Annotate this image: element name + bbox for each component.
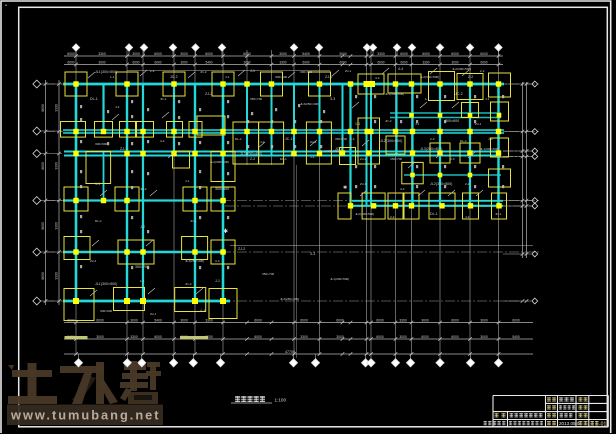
- svg-text:JL3(250×400): JL3(250×400): [240, 152, 262, 156]
- svg-text:6000: 6000: [400, 52, 408, 56]
- svg-text:3000: 3000: [180, 52, 188, 56]
- svg-text:300×600: 300×600: [275, 75, 287, 79]
- svg-text:JL1(300×500): JL1(300×500): [330, 277, 349, 281]
- svg-text:JC-2: JC-2: [170, 75, 178, 79]
- svg-text:ZJ-1: ZJ-1: [475, 122, 481, 126]
- svg-text:300×600: 300×600: [95, 142, 107, 146]
- svg-text:JL3(250×400): JL3(250×400): [300, 102, 319, 106]
- svg-text:6000: 6000: [300, 318, 308, 322]
- svg-text:ZJ-2: ZJ-2: [360, 157, 366, 161]
- svg-text:6000: 6000: [400, 60, 407, 64]
- svg-text:JL2(300×500): JL2(300×500): [380, 139, 402, 143]
- svg-text:47700: 47700: [285, 350, 295, 354]
- svg-text:6000: 6000: [377, 60, 384, 64]
- svg-text:3000: 3000: [130, 318, 138, 322]
- svg-text:3000: 3000: [279, 52, 287, 56]
- svg-text:300×600: 300×600: [100, 309, 112, 313]
- svg-text:6000: 6000: [451, 52, 459, 56]
- svg-text:JC-1: JC-1: [285, 137, 293, 141]
- svg-text:J-1: J-1: [250, 69, 255, 73]
- svg-text:JC-2: JC-2: [185, 282, 192, 286]
- svg-text:6600: 6600: [41, 162, 45, 170]
- svg-text:6000: 6000: [243, 52, 251, 56]
- svg-text:6600: 6600: [41, 222, 45, 230]
- svg-text:350×700: 350×700: [262, 272, 274, 276]
- svg-text:3300: 3300: [55, 162, 59, 170]
- svg-text:350×700: 350×700: [250, 97, 262, 101]
- svg-text:DL-1: DL-1: [90, 97, 98, 101]
- svg-text:JC-1: JC-1: [160, 97, 167, 101]
- svg-text:6000: 6000: [339, 60, 346, 64]
- svg-text:3300: 3300: [98, 52, 106, 56]
- svg-text:2-2: 2-2: [390, 215, 395, 219]
- svg-text:3-3: 3-3: [215, 259, 220, 263]
- svg-text:3000: 3000: [132, 52, 140, 56]
- svg-text:3-3: 3-3: [290, 152, 295, 156]
- svg-text:4-4: 4-4: [160, 139, 165, 143]
- svg-text:2-2: 2-2: [250, 157, 255, 161]
- svg-text:6000: 6000: [67, 52, 75, 56]
- svg-text:3300: 3300: [205, 318, 213, 322]
- svg-text:4-4: 4-4: [200, 309, 205, 313]
- svg-text:5400: 5400: [205, 60, 212, 64]
- svg-text:2-2: 2-2: [430, 137, 435, 141]
- svg-text:6600: 6600: [41, 104, 45, 112]
- svg-text:3000: 3000: [243, 60, 250, 64]
- svg-text:300×600: 300×600: [215, 187, 229, 191]
- svg-text:JC-2: JC-2: [455, 92, 463, 96]
- svg-text:1-1: 1-1: [95, 182, 100, 186]
- svg-text:ZJ-2: ZJ-2: [90, 259, 96, 263]
- svg-text:6000: 6000: [336, 318, 344, 322]
- svg-text:1-1: 1-1: [110, 75, 115, 79]
- svg-text:DL-1: DL-1: [95, 219, 102, 223]
- svg-text:5400: 5400: [302, 52, 310, 56]
- svg-text:1-1: 1-1: [355, 122, 360, 126]
- svg-text:4-4: 4-4: [350, 137, 355, 141]
- svg-text:3000: 3000: [451, 60, 458, 64]
- svg-text:ZJ-1: ZJ-1: [345, 69, 351, 73]
- svg-text:300×600: 300×600: [300, 70, 312, 74]
- svg-text:3300: 3300: [55, 104, 59, 112]
- svg-text:J-1: J-1: [215, 279, 220, 283]
- svg-text:JC-2: JC-2: [385, 119, 392, 123]
- svg-text:6000: 6000: [422, 52, 430, 56]
- svg-text:6000: 6000: [512, 318, 520, 322]
- svg-text:6000: 6000: [451, 335, 459, 339]
- svg-text:3000: 3000: [339, 52, 347, 56]
- svg-text:3300: 3300: [279, 60, 286, 64]
- svg-text:300×600: 300×600: [445, 119, 459, 123]
- svg-text:6000: 6000: [154, 60, 161, 64]
- svg-text:6000: 6000: [67, 318, 75, 322]
- svg-text:J-2: J-2: [488, 137, 493, 141]
- svg-text:JL2(300×500): JL2(300×500): [420, 75, 439, 79]
- svg-text:JL2(300×500): JL2(300×500): [355, 212, 374, 216]
- svg-text:6000: 6000: [96, 318, 104, 322]
- svg-text:6000: 6000: [154, 335, 162, 339]
- svg-text:6000: 6000: [254, 335, 262, 339]
- svg-text:2013.05.0: 2013.05.0: [559, 421, 580, 426]
- svg-text:JL3(250×400): JL3(250×400): [280, 297, 299, 301]
- svg-text:DL-1: DL-1: [460, 139, 467, 143]
- svg-text:3000: 3000: [180, 60, 187, 64]
- svg-text:6000: 6000: [421, 335, 429, 339]
- svg-text:1-1: 1-1: [425, 97, 430, 101]
- svg-text:DL-1: DL-1: [430, 212, 438, 216]
- svg-text:JL1(300×500): JL1(300×500): [95, 282, 117, 286]
- svg-text:JL2(300×500): JL2(300×500): [210, 160, 229, 164]
- svg-text:J-2: J-2: [310, 155, 315, 159]
- svg-text:3-3: 3-3: [310, 252, 315, 256]
- svg-text:3000: 3000: [480, 318, 488, 322]
- svg-text:6000: 6000: [302, 60, 309, 64]
- svg-text:6000: 6000: [254, 318, 262, 322]
- svg-text:1-1: 1-1: [140, 279, 145, 283]
- svg-text:JC-1: JC-1: [190, 219, 197, 223]
- svg-text:✱: ✱: [343, 185, 347, 191]
- svg-text:JC-2: JC-2: [200, 70, 207, 74]
- svg-text:3000: 3000: [480, 335, 488, 339]
- svg-text:3000: 3000: [98, 60, 105, 64]
- svg-text:J-1: J-1: [415, 122, 420, 126]
- svg-text:J-1: J-1: [225, 75, 230, 79]
- svg-text:350×700: 350×700: [135, 265, 149, 269]
- svg-text:J-1: J-1: [485, 97, 490, 101]
- svg-text:JC-1: JC-1: [495, 212, 502, 216]
- svg-text:▲·: ▲·: [4, 2, 9, 7]
- svg-text:JL1(300×500): JL1(300×500): [385, 92, 404, 96]
- svg-text:3000: 3000: [96, 335, 104, 339]
- svg-text:ZJ-1: ZJ-1: [360, 182, 366, 186]
- svg-text:J-2: J-2: [140, 225, 145, 229]
- svg-text:J-1: J-1: [185, 179, 190, 183]
- svg-text:3300: 3300: [377, 52, 385, 56]
- svg-text:JL1(300×500): JL1(300×500): [95, 70, 117, 74]
- svg-text:6000: 6000: [376, 335, 384, 339]
- svg-text:www.tumubang.net: www.tumubang.net: [10, 408, 161, 423]
- svg-text:DL-1: DL-1: [235, 137, 242, 141]
- svg-text:3300: 3300: [130, 335, 138, 339]
- svg-text:J-2: J-2: [465, 215, 470, 219]
- svg-text:6000: 6000: [67, 60, 74, 64]
- svg-text:4-4: 4-4: [400, 187, 405, 191]
- svg-text:350×700: 350×700: [335, 137, 347, 141]
- svg-text:JL1(300×500): JL1(300×500): [480, 147, 499, 151]
- svg-text:3000: 3000: [399, 335, 407, 339]
- svg-text:ZJ-1: ZJ-1: [120, 147, 127, 151]
- svg-text:4-4: 4-4: [398, 67, 403, 71]
- svg-text:ZJ-2: ZJ-2: [205, 92, 212, 96]
- svg-text:DL-1: DL-1: [280, 157, 287, 161]
- svg-text:JL2(300×500): JL2(300×500): [430, 182, 452, 186]
- svg-text:2-2: 2-2: [465, 182, 470, 186]
- svg-text:1-1: 1-1: [150, 69, 155, 73]
- svg-text:5400: 5400: [154, 318, 162, 322]
- svg-text:ZJ-1: ZJ-1: [150, 312, 156, 316]
- svg-text:ZJ-1: ZJ-1: [325, 75, 332, 79]
- svg-text:3-3: 3-3: [450, 157, 455, 161]
- svg-text:1:100: 1:100: [275, 398, 287, 403]
- svg-text:3300: 3300: [422, 60, 429, 64]
- svg-text:6000: 6000: [376, 318, 384, 322]
- svg-text:J-2: J-2: [260, 140, 265, 144]
- svg-text:3-3: 3-3: [330, 97, 335, 101]
- svg-text:3000: 3000: [336, 335, 344, 339]
- svg-text:JL3(250×400): JL3(250×400): [185, 259, 204, 263]
- svg-text:6000: 6000: [480, 60, 487, 64]
- svg-text:4-4: 4-4: [375, 76, 380, 80]
- svg-text:JL3(250×400): JL3(250×400): [420, 147, 442, 151]
- svg-text:-01: -01: [599, 421, 606, 427]
- svg-text:6000: 6000: [154, 52, 162, 56]
- svg-text:ZJ-2: ZJ-2: [238, 247, 245, 251]
- svg-text:5400: 5400: [512, 335, 520, 339]
- svg-text:3300: 3300: [55, 222, 59, 230]
- svg-text:6000: 6000: [451, 318, 459, 322]
- svg-text:3300: 3300: [300, 335, 308, 339]
- svg-text:JC-2: JC-2: [140, 187, 147, 191]
- svg-text:J-2: J-2: [115, 105, 120, 109]
- svg-text:3000: 3000: [421, 318, 429, 322]
- svg-text:2-2: 2-2: [480, 69, 485, 73]
- svg-text:3300: 3300: [55, 272, 59, 280]
- svg-text:6000: 6000: [205, 52, 213, 56]
- svg-text:6600: 6600: [41, 272, 45, 280]
- svg-text:2-2: 2-2: [468, 75, 473, 79]
- svg-text:6000: 6000: [480, 52, 488, 56]
- svg-text:3000: 3000: [180, 318, 188, 322]
- svg-text:JL1(300×500): JL1(300×500): [320, 149, 339, 153]
- svg-text:3300: 3300: [399, 318, 407, 322]
- svg-text:350×700: 350×700: [390, 157, 402, 161]
- svg-text:6000: 6000: [132, 60, 139, 64]
